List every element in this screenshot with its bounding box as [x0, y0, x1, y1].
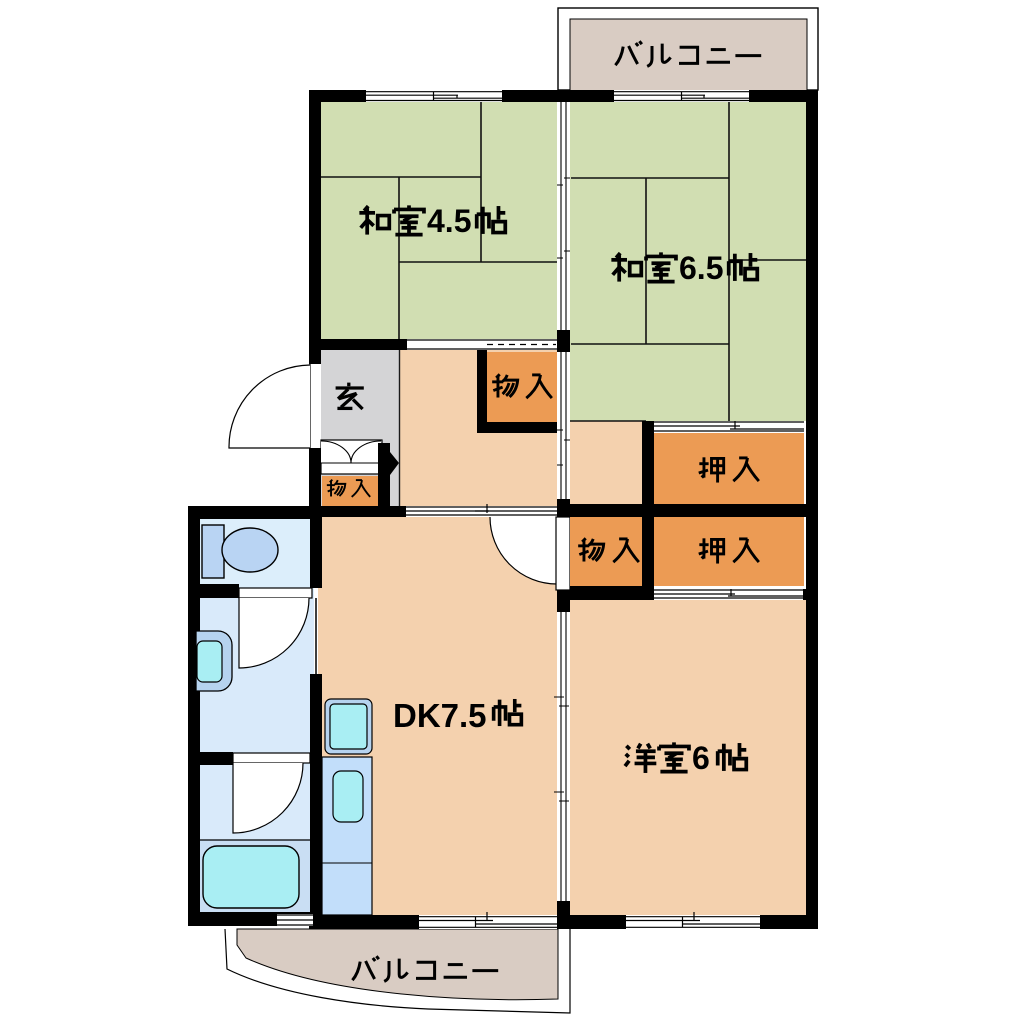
svg-text:DK7.5: DK7.5: [393, 697, 487, 734]
svg-text:6: 6: [692, 740, 710, 776]
svg-text:4.5: 4.5: [427, 203, 471, 239]
svg-text:6.5: 6.5: [679, 250, 723, 286]
